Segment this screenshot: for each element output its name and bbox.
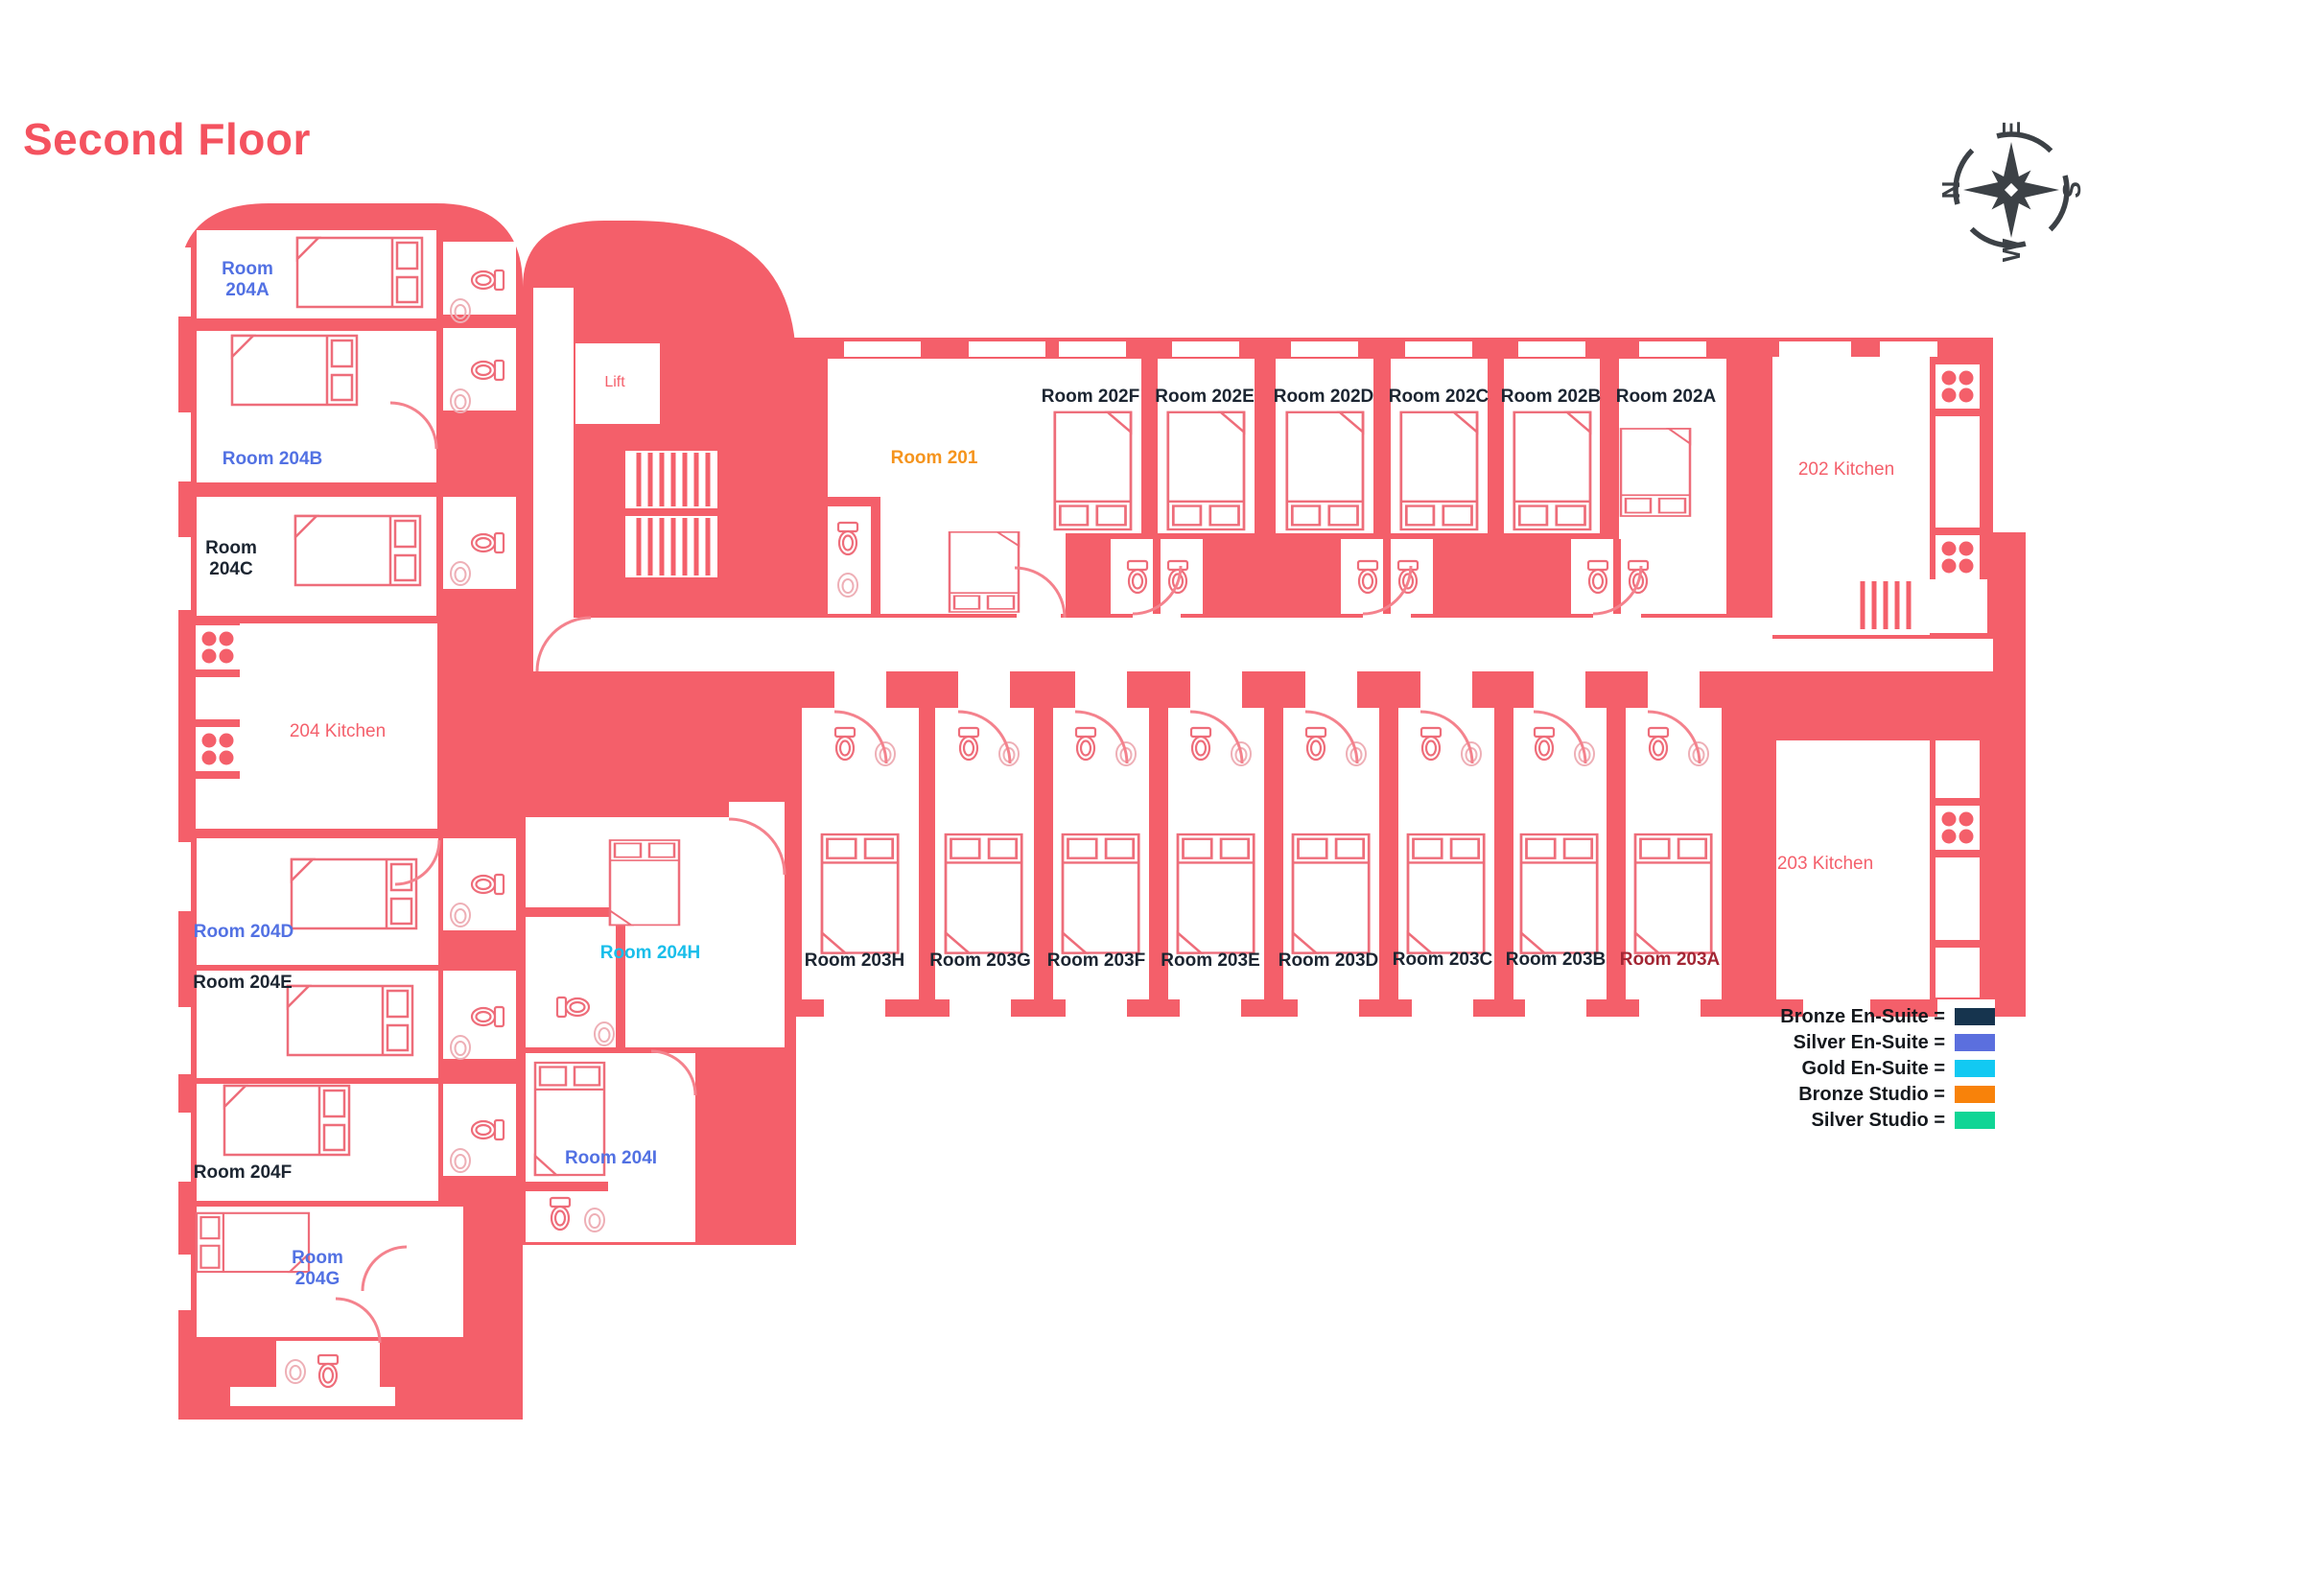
toilet-icon — [472, 1120, 504, 1139]
bed-icon — [610, 840, 679, 925]
toilet-icon — [1076, 728, 1095, 760]
room-label-202a: Room 202A — [1616, 387, 1717, 408]
room-label-203c: Room 203C — [1393, 950, 1493, 971]
room-label-204h: Room 204H — [600, 943, 701, 964]
bed-icon — [1514, 412, 1590, 529]
bed-icon — [1521, 834, 1597, 953]
kitchen-202-floor — [1772, 357, 1930, 635]
legend-swatch-bronze-studio — [1955, 1086, 1995, 1103]
bed-icon — [1293, 834, 1369, 953]
bed-icon — [292, 859, 416, 928]
toilet-icon — [472, 875, 504, 894]
toilet-icon — [318, 1355, 338, 1387]
toilet-icon — [472, 533, 504, 552]
kitchen-203-label: 203 Kitchen — [1777, 854, 1873, 875]
legend-label: Bronze En-Suite = — [1780, 1007, 1945, 1026]
stove-icon — [196, 625, 240, 669]
toilet-icon — [1588, 561, 1607, 593]
bed-icon — [288, 986, 412, 1055]
bed-icon — [1401, 412, 1477, 529]
corridor-floor — [533, 618, 1772, 671]
legend-label: Bronze Studio = — [1798, 1085, 1945, 1104]
room-label-202c: Room 202C — [1389, 387, 1490, 408]
bed-icon — [822, 834, 898, 953]
legend-item-gold-en-suite: Gold En-Suite = — [1583, 1059, 1995, 1078]
legend-swatch-gold-en-suite — [1955, 1060, 1995, 1077]
toilet-icon — [472, 270, 504, 290]
legend-item-silver-studio: Silver Studio = — [1583, 1111, 1995, 1130]
compass-letter-east: E — [1997, 121, 2026, 137]
stove-icon — [1935, 364, 1980, 409]
toilet-icon — [1629, 561, 1648, 593]
room-201-floor — [828, 359, 1066, 614]
bed-icon — [224, 1086, 349, 1155]
page-title: Second Floor — [23, 113, 311, 165]
room-label-204f: Room 204F — [194, 1162, 292, 1184]
toilet-icon — [1128, 561, 1147, 593]
room-label-202f: Room 202F — [1042, 387, 1139, 408]
legend-item-silver-en-suite: Silver En-Suite = — [1583, 1033, 1995, 1052]
bed-icon — [950, 532, 1019, 612]
room-label-203d: Room 203D — [1279, 951, 1379, 972]
toilet-icon — [472, 1007, 504, 1026]
legend-item-bronze-en-suite: Bronze En-Suite = — [1583, 1007, 1995, 1026]
toilet-icon — [557, 997, 589, 1017]
compass-letter-west: W — [1997, 238, 2026, 262]
room-label-203f: Room 203F — [1047, 951, 1145, 972]
bed-icon — [1635, 834, 1711, 953]
stove-icon — [196, 727, 240, 771]
bed-icon — [232, 336, 357, 405]
compass-letter-north: N — [1939, 181, 1965, 199]
room-label-203e: Room 203E — [1161, 951, 1259, 972]
toilet-icon — [1649, 728, 1668, 760]
toilet-icon — [835, 728, 855, 760]
room-label-202e: Room 202E — [1155, 387, 1254, 408]
lift-label: Lift — [604, 374, 624, 391]
toilet-icon — [1168, 561, 1187, 593]
room-label-204e: Room 204E — [193, 973, 292, 994]
room-label-201: Room 201 — [891, 448, 978, 469]
corridor-east-floor — [1772, 639, 1993, 671]
compass-rose: E S W N — [1939, 118, 2083, 262]
bed-icon — [1621, 429, 1690, 516]
toilet-icon — [1535, 728, 1554, 760]
bed-icon — [1287, 412, 1363, 529]
toilet-icon — [838, 523, 857, 554]
stove-icon — [1935, 535, 1980, 579]
room-label-203h: Room 203H — [805, 951, 905, 972]
bed-icon — [1168, 412, 1244, 529]
toilet-icon — [551, 1198, 570, 1230]
bed-icon — [946, 834, 1021, 953]
toilet-icon — [1398, 561, 1418, 593]
room-label-204c: Room 204C — [205, 538, 257, 580]
kitchen-202-label: 202 Kitchen — [1798, 459, 1894, 481]
legend-swatch-bronze-en-suite — [1955, 1008, 1995, 1025]
kitchen-204-label: 204 Kitchen — [290, 721, 386, 742]
room-label-204a: Room 204A — [222, 259, 273, 301]
room-label-204b: Room 204B — [223, 449, 323, 470]
toilet-icon — [959, 728, 978, 760]
room-label-204i: Room 204I — [565, 1148, 657, 1169]
hall-floor — [533, 288, 574, 618]
compass-letter-south: S — [2057, 181, 2083, 198]
toilet-icon — [1306, 728, 1325, 760]
floorplan-page: Second Floor E S W N Room 204A Room 204B… — [0, 0, 2299, 1596]
bed-icon — [295, 516, 420, 585]
room-label-204d: Room 204D — [194, 922, 294, 943]
toilet-icon — [1358, 561, 1377, 593]
legend-swatch-silver-studio — [1955, 1112, 1995, 1129]
room-label-202b: Room 202B — [1501, 387, 1602, 408]
room-label-203a: Room 203A — [1620, 950, 1721, 971]
toilet-icon — [1191, 728, 1210, 760]
bed-icon — [1408, 834, 1484, 953]
toilet-icon — [1421, 728, 1441, 760]
legend-label: Silver Studio = — [1812, 1111, 1945, 1130]
bed-icon — [1055, 412, 1131, 529]
room-label-204g: Room 204G — [292, 1248, 343, 1290]
room-label-203b: Room 203B — [1506, 950, 1607, 971]
legend-label: Silver En-Suite = — [1794, 1033, 1945, 1052]
room-label-203g: Room 203G — [929, 951, 1031, 972]
stove-icon — [1935, 806, 1980, 850]
bed-icon — [1178, 834, 1254, 953]
legend: Bronze En-Suite = Silver En-Suite = Gold… — [1583, 1007, 1995, 1137]
bed-icon — [297, 238, 422, 307]
legend-item-bronze-studio: Bronze Studio = — [1583, 1085, 1995, 1104]
legend-swatch-silver-en-suite — [1955, 1034, 1995, 1051]
toilet-icon — [472, 361, 504, 380]
legend-label: Gold En-Suite = — [1802, 1059, 1945, 1078]
bed-icon — [1063, 834, 1138, 953]
room-label-202d: Room 202D — [1274, 387, 1374, 408]
